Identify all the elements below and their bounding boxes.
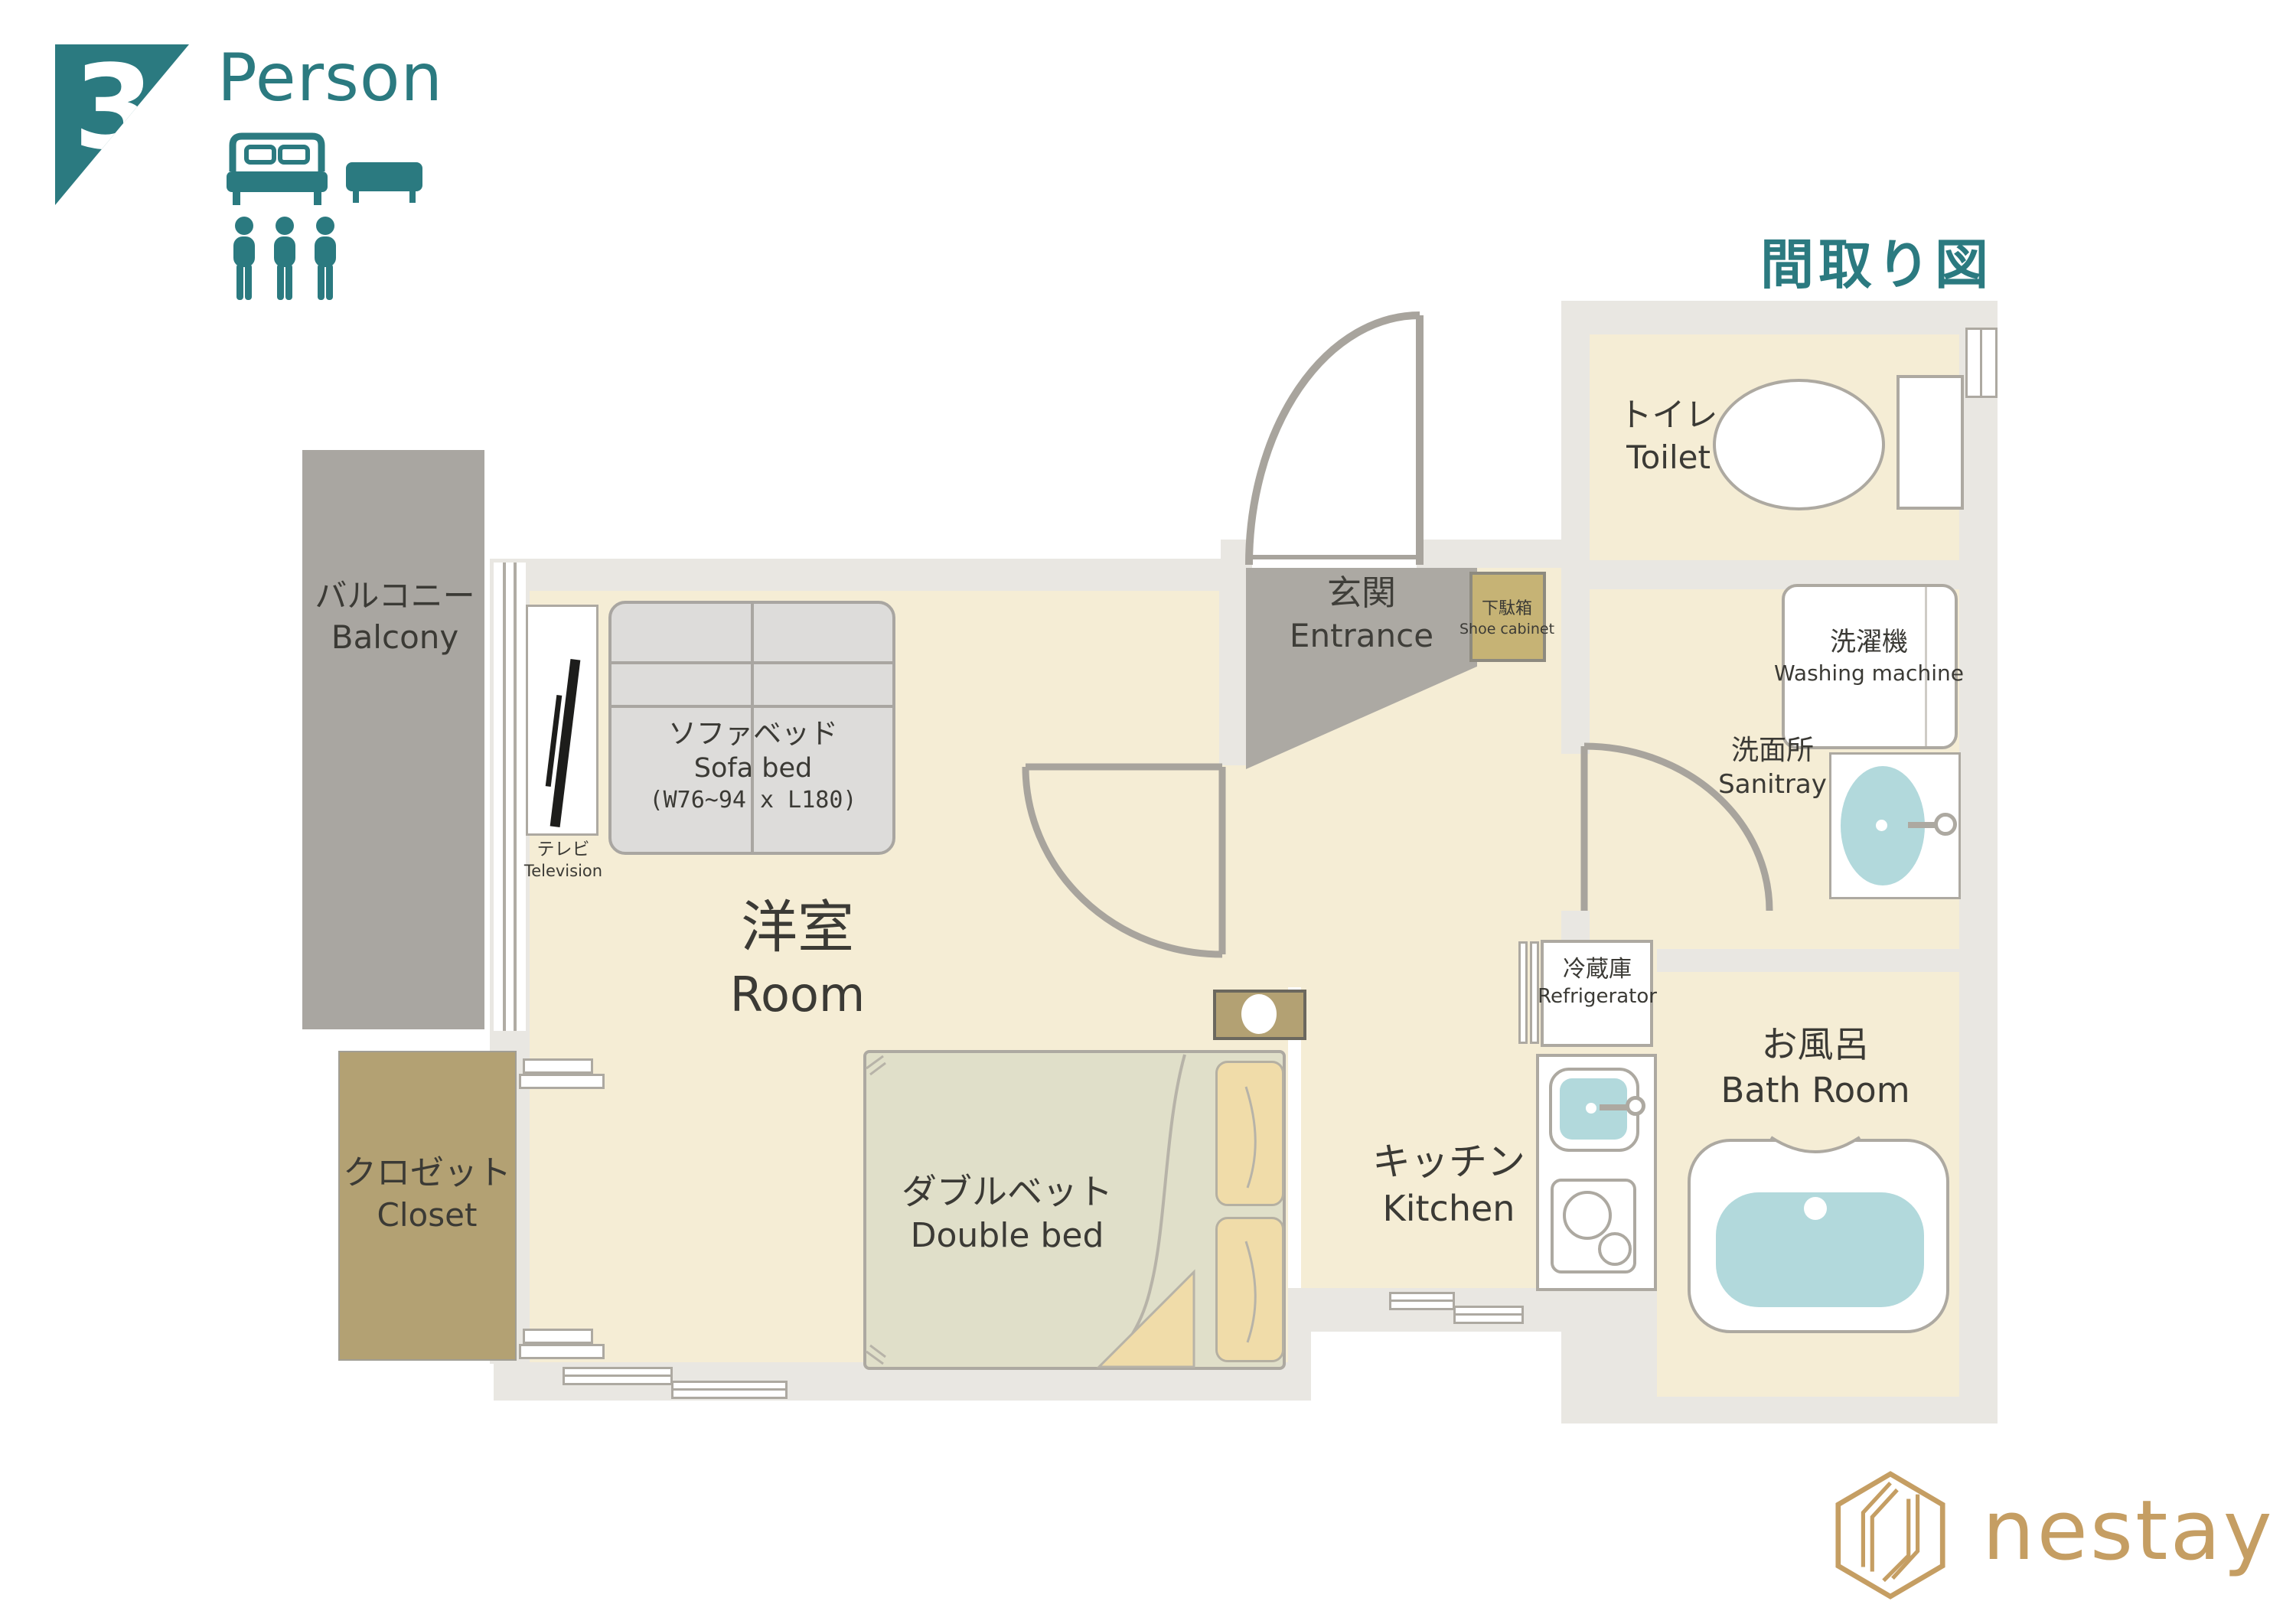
- person-icons: [227, 216, 343, 304]
- bathtub-drain: [1804, 1197, 1827, 1220]
- bedside-counter: [1213, 990, 1306, 1040]
- bed-pillow: [1215, 1061, 1284, 1206]
- kitchen-label: キッチンKitchen: [1372, 1137, 1525, 1231]
- window: [1453, 1306, 1524, 1324]
- brand-logo: nestay: [1833, 1469, 2262, 1603]
- double-bed-label: ダブルベットDouble bed: [902, 1169, 1113, 1257]
- wall-segment: [494, 559, 1221, 591]
- bathtub: [1688, 1139, 1949, 1333]
- page-title: 間取り図: [1760, 222, 1993, 299]
- tv-label: テレビTelevision: [524, 839, 602, 882]
- door-opening: [1252, 540, 1417, 568]
- nestay-logo-text: nestay: [1982, 1483, 2275, 1579]
- wall-segment: [1657, 949, 1959, 972]
- door-opening: [1561, 754, 1590, 911]
- wall-segment: [1561, 1397, 1998, 1423]
- entrance-label: 玄関Entrance: [1290, 571, 1433, 656]
- window: [1965, 328, 1998, 398]
- balcony-label: バルコニーBalcony: [315, 576, 475, 658]
- window: [671, 1381, 788, 1399]
- toilet-cistern: [1896, 375, 1964, 510]
- person-icon: [227, 216, 262, 304]
- capacity-triangle: 3: [55, 44, 189, 205]
- closet-sliding-door: [523, 1058, 593, 1074]
- faucet-icon: [1626, 1096, 1645, 1116]
- sofa-icon: [346, 158, 422, 205]
- bathroom-label: お風呂Bath Room: [1720, 1022, 1910, 1113]
- double-bed-icon: [223, 129, 331, 209]
- capacity-label: Person: [217, 40, 443, 116]
- wall-segment: [1561, 301, 1998, 334]
- closet-sliding-door: [523, 1329, 593, 1344]
- nestay-logo-icon: [1833, 1469, 1948, 1601]
- wall-segment: [1959, 301, 1998, 1423]
- wall-segment: [1561, 1288, 1657, 1397]
- tv-stand: [526, 605, 598, 836]
- sanitray-label: 洗面所Sanitray: [1718, 733, 1827, 802]
- stove: [1551, 1179, 1636, 1273]
- burner: [1563, 1191, 1612, 1240]
- closet-label: クロゼットCloset: [343, 1152, 511, 1236]
- capacity-badge: 3 Person: [0, 0, 490, 329]
- capacity-count: 3: [73, 40, 155, 175]
- window: [1389, 1292, 1455, 1310]
- fridge-nook-door: [1518, 941, 1528, 1044]
- floor-plan-page: 3 Person: [0, 0, 2296, 1624]
- bathroom-sink: [1829, 752, 1961, 899]
- bed-pillow: [1215, 1217, 1284, 1362]
- closet-sliding-door: [519, 1074, 605, 1089]
- window: [494, 563, 526, 1031]
- balcony-area: [302, 450, 484, 1029]
- refrigerator-label: 冷蔵庫Refrigerator: [1538, 955, 1657, 1010]
- toilet-bowl: [1713, 379, 1885, 510]
- wall-segment: [1288, 1288, 1311, 1401]
- room-label: 洋室Room: [730, 892, 866, 1025]
- toilet-label: トイレToilet: [1619, 395, 1718, 478]
- burner: [1598, 1232, 1632, 1266]
- faucet-icon: [1934, 813, 1957, 836]
- shoe-cabinet-label: 下駄箱Shoe cabinet: [1459, 598, 1554, 638]
- sofa-bed-label: ソファベッド Sofa bed (W76~94 x L180): [650, 716, 857, 816]
- washing-machine-label: 洗濯機Washing machine: [1774, 626, 1964, 686]
- person-icon: [308, 216, 343, 304]
- window: [563, 1367, 673, 1385]
- person-icon: [267, 216, 302, 304]
- closet-sliding-door: [519, 1344, 605, 1359]
- wall-segment: [1219, 559, 1247, 767]
